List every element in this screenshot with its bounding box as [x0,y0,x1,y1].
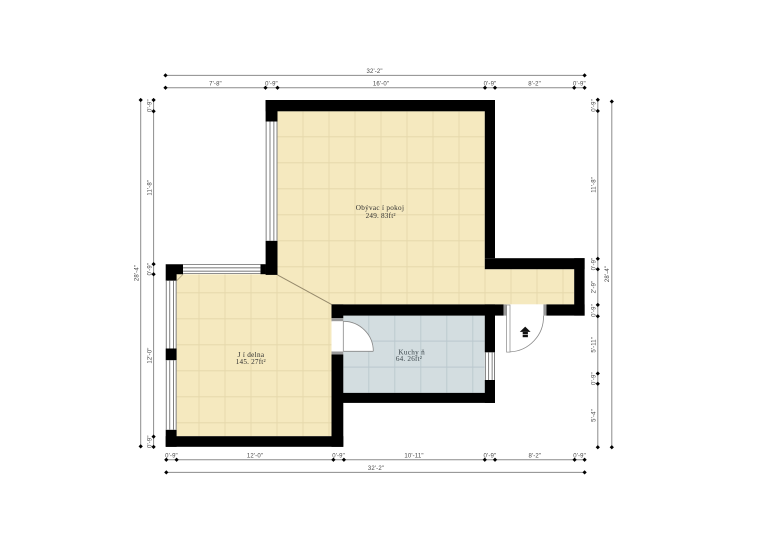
svg-text:12'-0": 12'-0" [147,347,153,363]
svg-text:0'-9": 0'-9" [592,258,598,271]
svg-text:0'-9": 0'-9" [592,304,598,317]
svg-text:32'-2": 32'-2" [368,466,384,472]
svg-text:0'-9": 0'-9" [592,99,598,112]
svg-text:12'-0": 12'-0" [247,454,263,460]
svg-text:0'-9": 0'-9" [147,99,153,112]
svg-text:0'-9": 0'-9" [484,454,497,460]
svg-text:0'-9": 0'-9" [165,454,178,460]
svg-text:0'-9": 0'-9" [265,82,278,88]
svg-text:28'-4": 28'-4" [605,266,611,282]
svg-text:8'-2": 8'-2" [528,82,541,88]
svg-text:249. 83ft²: 249. 83ft² [366,212,396,220]
svg-text:32'-2": 32'-2" [367,69,383,75]
svg-text:11'-8": 11'-8" [147,180,153,196]
svg-text:0'-9": 0'-9" [592,372,598,385]
svg-text:2'-9": 2'-9" [592,281,598,294]
svg-text:5'-11": 5'-11" [592,337,598,353]
svg-text:28'-4": 28'-4" [134,265,140,281]
svg-text:8'-2": 8'-2" [528,454,541,460]
svg-text:16'-0": 16'-0" [373,82,389,88]
svg-text:0'-9": 0'-9" [332,454,345,460]
svg-text:7'-8": 7'-8" [209,82,222,88]
svg-text:11'-8": 11'-8" [592,177,598,193]
svg-text:0'-9": 0'-9" [573,82,586,88]
svg-text:64. 26ft²: 64. 26ft² [396,355,422,363]
svg-text:0'-9": 0'-9" [573,454,586,460]
svg-text:5'-4": 5'-4" [592,409,598,422]
svg-text:145. 27ft²: 145. 27ft² [236,358,266,366]
svg-text:0'-9": 0'-9" [147,435,153,448]
svg-text:0'-9": 0'-9" [147,263,153,276]
svg-text:0'-9": 0'-9" [484,82,497,88]
svg-text:10'-11": 10'-11" [404,454,423,460]
